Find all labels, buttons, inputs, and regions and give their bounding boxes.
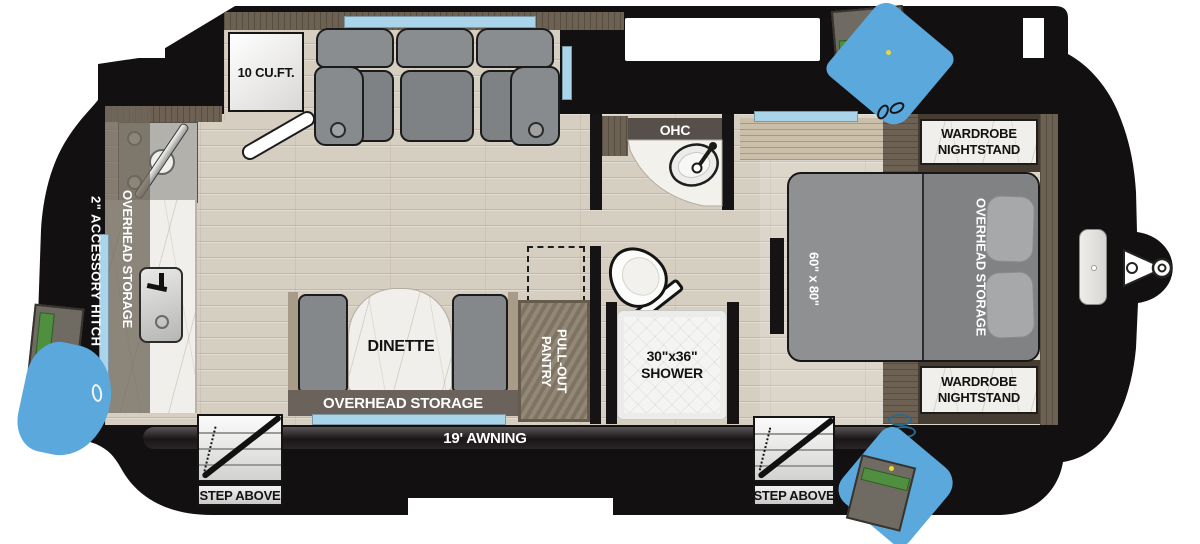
cupholder-icon <box>528 122 544 138</box>
step-diagonal <box>201 414 282 479</box>
bed-size-wrap: 60" x 80" <box>799 224 829 334</box>
refrigerator: 10 CU.FT. <box>228 32 304 112</box>
entry-step-panel <box>753 416 835 482</box>
door-latch-icon <box>886 50 891 55</box>
refrigerator-label: 10 CU.FT. <box>238 65 295 80</box>
window-bedroom <box>754 111 858 122</box>
awning-label-wrap: 19' AWNING <box>420 429 550 447</box>
sink-faucet-handle-icon <box>147 283 168 292</box>
shower-label: 30"x36" SHOWER <box>641 348 703 382</box>
sofa-armrest <box>510 66 560 146</box>
propane-cover <box>1079 229 1107 305</box>
window-sofa <box>344 16 536 28</box>
body-cutout-rear-top <box>105 19 165 58</box>
bathroom-cabinet <box>602 116 628 156</box>
sofa-seat-cushion <box>400 70 474 142</box>
awning-label: 19' AWNING <box>443 430 527 447</box>
entry-step-panel <box>197 414 283 482</box>
entry-step-tread <box>861 467 911 491</box>
pantry: PULL-OUT PANTRY <box>518 300 590 422</box>
shower: 30"x36" SHOWER <box>617 310 727 420</box>
floorplan-canvas: OVERHEAD STORAGE 10 CU.FT. OHC <box>0 0 1200 544</box>
step-above-label: STEP ABOVE <box>753 488 834 503</box>
pantry-label: PULL-OUT PANTRY <box>538 329 569 393</box>
dinette-overhead-storage-label: OVERHEAD STORAGE <box>323 395 483 412</box>
step-above-label: STEP ABOVE <box>199 488 280 503</box>
accessory-hitch-wrap: 2" ACCESSORY HITCH <box>84 182 108 360</box>
body-cutout-front-top <box>1023 18 1044 58</box>
sofa-armrest <box>314 66 364 146</box>
dinette-bench <box>452 294 508 392</box>
step-line <box>199 432 281 434</box>
bed: OVERHEAD STORAGE 60" x 80" <box>787 172 1040 362</box>
propane-cover-hole <box>1091 265 1097 271</box>
pantry-pullout-outline <box>527 246 585 302</box>
door-latch-icon <box>889 466 894 471</box>
front-wall-wood-trim <box>1040 114 1058 425</box>
sink-drain-icon <box>155 315 169 329</box>
kitchen-sink <box>139 267 183 343</box>
kitchen-overhead-storage-label: OVERHEAD STORAGE <box>120 190 135 328</box>
accessory-hitch-label: 2" ACCESSORY HITCH <box>89 196 104 346</box>
ohc-label: OHC <box>660 122 691 138</box>
door-spring-icon <box>888 414 912 426</box>
shower-wall <box>606 302 617 424</box>
cupholder-icon <box>330 122 346 138</box>
dinette-label: DINETTE <box>367 338 434 356</box>
bed-pillow <box>985 195 1035 263</box>
body-cutout-center-top <box>625 18 820 61</box>
toilet-bowl-inner <box>614 250 667 304</box>
shower-wall <box>727 302 739 424</box>
kitchen-overhead-storage-band: OVERHEAD STORAGE <box>105 106 150 413</box>
nightstand-bottom-label: WARDROBE NIGHTSTAND <box>938 374 1020 405</box>
dinette-overhead-storage-band: OVERHEAD STORAGE <box>288 390 518 416</box>
step-above-plate: STEP ABOVE <box>197 484 283 506</box>
dinette-bench <box>298 294 348 392</box>
sofa-back-cushion <box>396 28 474 68</box>
bed-pillow <box>985 271 1035 339</box>
sofa <box>314 26 560 148</box>
step-above-plate: STEP ABOVE <box>753 484 835 506</box>
dinette-table: DINETTE <box>348 288 452 392</box>
bedroom-floor-transition <box>740 118 885 160</box>
bedroom-privacy-wall <box>770 238 784 334</box>
nightstand-top: WARDROBE NIGHTSTAND <box>920 119 1038 165</box>
bathroom-wall <box>590 114 602 210</box>
window-dinette <box>312 414 506 425</box>
body-cutout-bottom <box>408 498 613 532</box>
bathroom-wall <box>722 114 734 210</box>
sofa-back-cushion <box>316 28 394 68</box>
bed-size-label: 60" x 80" <box>807 252 822 306</box>
dinette-label-wrap: DINETTE <box>349 335 453 359</box>
sofa-back-cushion <box>476 28 554 68</box>
ohc-band: OHC <box>628 118 722 142</box>
nightstand-bottom: WARDROBE NIGHTSTAND <box>920 366 1038 414</box>
window-slideout-side <box>562 46 572 100</box>
nightstand-top-label: WARDROBE NIGHTSTAND <box>938 126 1020 157</box>
